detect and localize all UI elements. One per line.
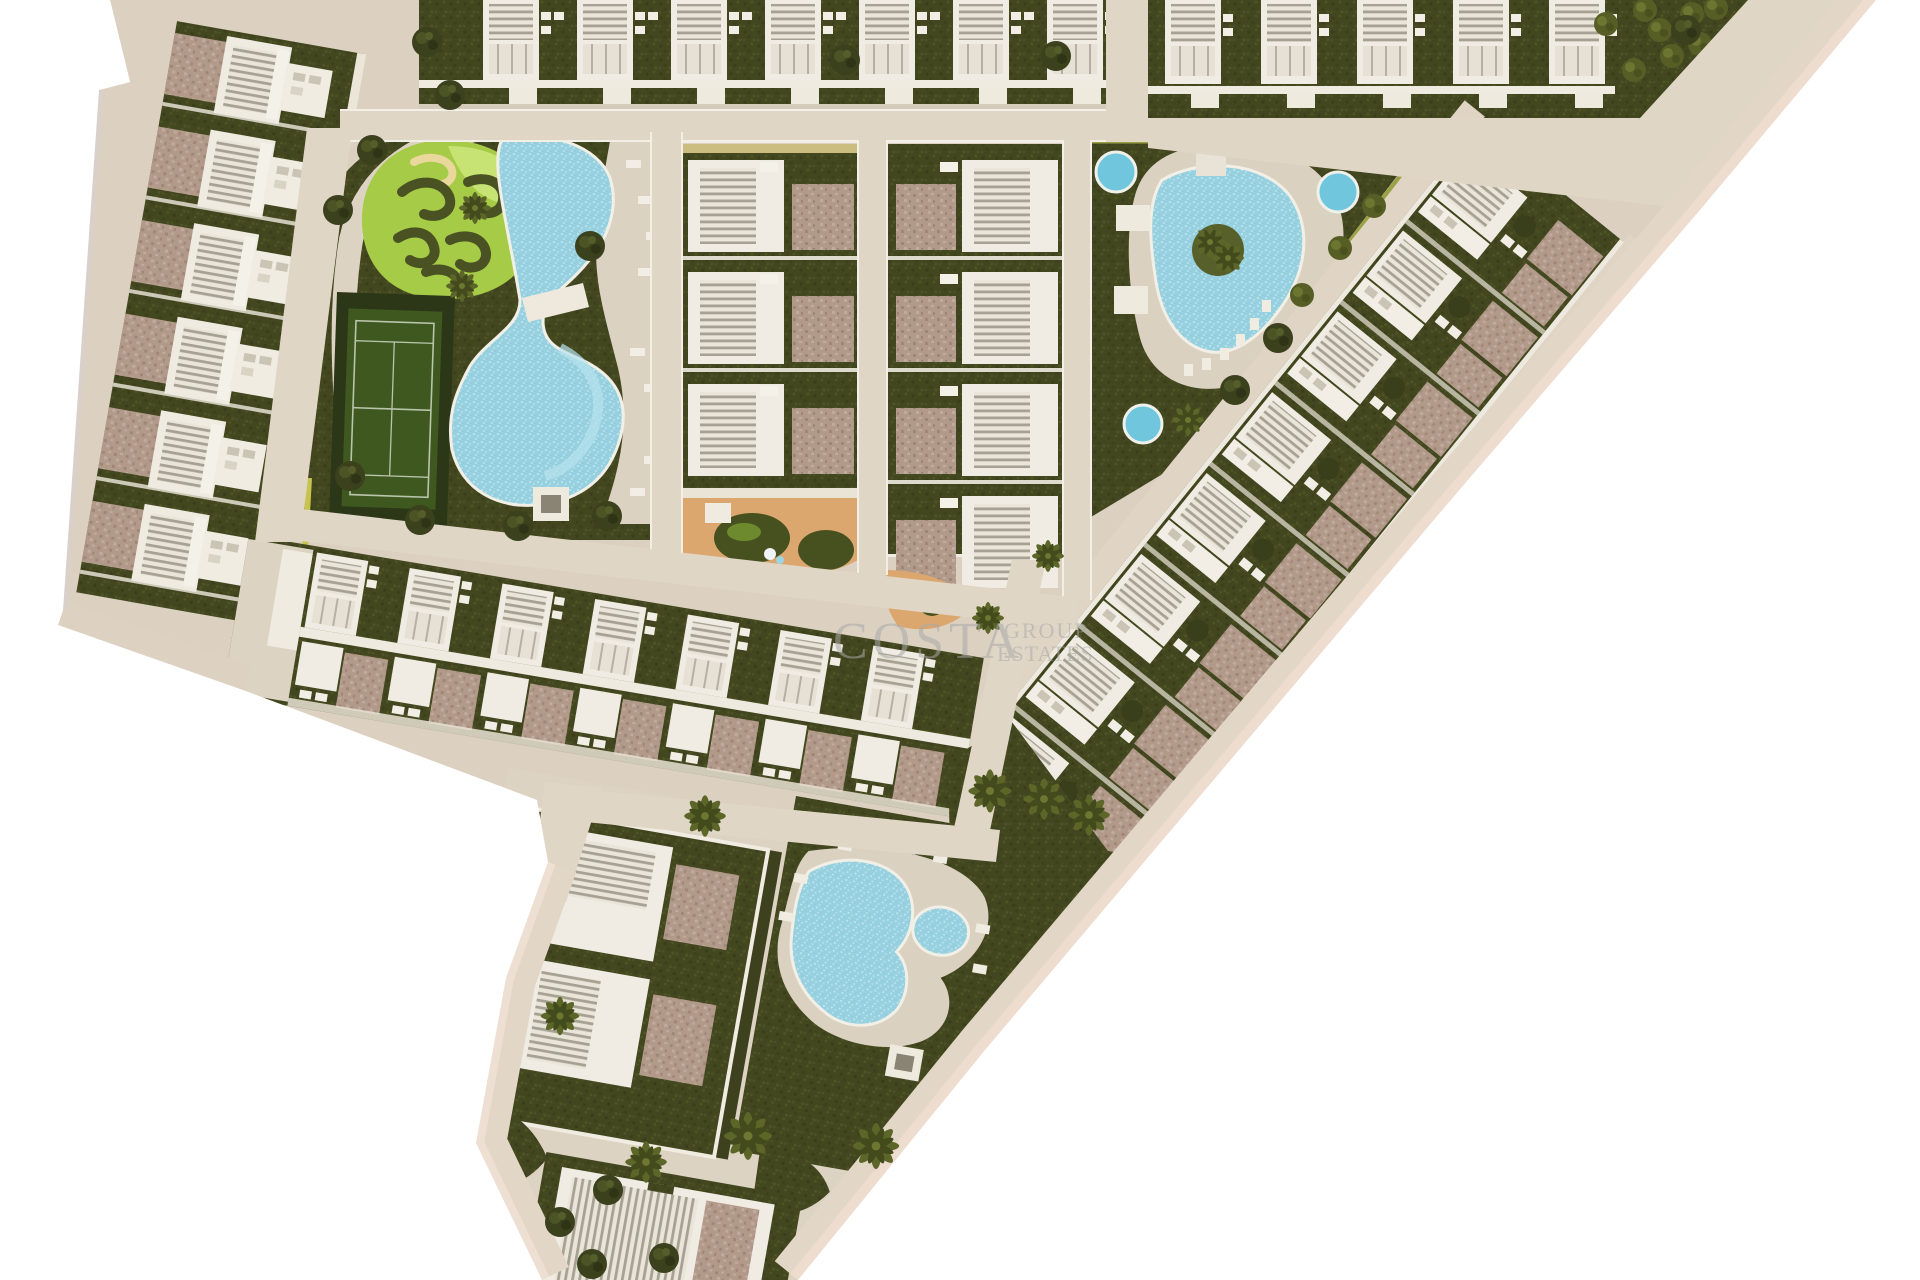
svg-text:ESTATES: ESTATES bbox=[997, 641, 1094, 666]
svg-text:GROUP: GROUP bbox=[1004, 618, 1089, 643]
svg-text:COSTA: COSTA bbox=[833, 613, 1024, 670]
